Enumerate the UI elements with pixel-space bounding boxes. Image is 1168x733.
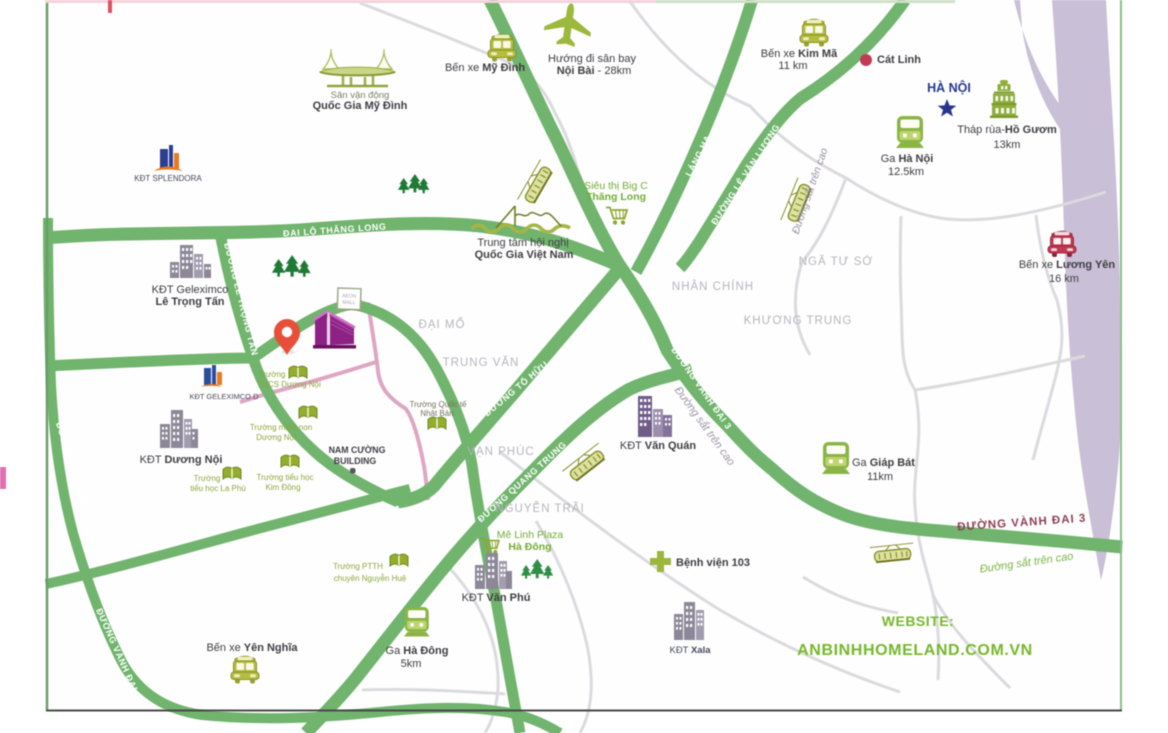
svg-text:Hướng đi sân bay: Hướng đi sân bay [548,53,636,65]
svg-text:Nhật Bản: Nhật Bản [420,409,453,418]
svg-text:Hà Đông: Hà Đông [508,541,551,553]
svg-text:WEBSITE:: WEBSITE: [882,613,954,629]
svg-text:Thăng Long: Thăng Long [586,191,646,203]
svg-text:VẠN PHÚC: VẠN PHÚC [467,445,534,458]
svg-text:KHƯƠNG TRUNG: KHƯƠNG TRUNG [744,315,853,327]
svg-text:KĐT Văn Phú: KĐT Văn Phú [462,592,531,604]
svg-text:Trường Quốc tế: Trường Quốc tế [410,400,468,409]
svg-text:NAM CƯỜNG: NAM CƯỜNG [329,444,386,455]
svg-text:Bệnh viện 103: Bệnh viện 103 [676,557,750,569]
svg-text:NGUYỄN TRÃI: NGUYỄN TRÃI [495,502,584,515]
svg-text:Trường mầm non: Trường mầm non [250,423,312,432]
svg-text:Bến xe Yên Nghĩa: Bến xe Yên Nghĩa [206,642,298,654]
svg-text:KĐT Dương Nội: KĐT Dương Nội [140,454,223,466]
svg-text:tiểu học La Phù: tiểu học La Phù [190,484,246,493]
svg-text:TRUNG VĂN: TRUNG VĂN [443,356,520,369]
svg-text:AEON: AEON [342,293,357,300]
svg-text:12.5km: 12.5km [888,166,924,178]
svg-text:Nội Bài - 28km: Nội Bài - 28km [557,65,632,77]
svg-text:HÀ NỘI: HÀ NỘI [927,80,971,95]
svg-text:13km: 13km [994,139,1021,151]
svg-text:Trung tâm hội nghị: Trung tâm hội nghị [477,237,568,249]
svg-text:Dương Nội: Dương Nội [256,433,296,442]
svg-text:Cát Linh: Cát Linh [877,54,921,66]
svg-text:Kim Đồng: Kim Đồng [265,483,300,492]
svg-text:5km: 5km [401,658,422,670]
svg-text:KĐT Xala: KĐT Xala [669,645,711,656]
svg-text:Ga Hà Đông: Ga Hà Đông [386,645,449,657]
svg-text:BUILDING: BUILDING [334,456,377,466]
svg-text:11 km: 11 km [778,60,807,72]
svg-text:NHÂN CHÍNH: NHÂN CHÍNH [672,280,754,293]
svg-text:Bến xe Lương Yên: Bến xe Lương Yên [1019,259,1116,271]
svg-text:ĐẠI MỔ: ĐẠI MỔ [419,318,466,331]
svg-text:ANBINHHOMELAND.COM.VN: ANBINHHOMELAND.COM.VN [797,642,1033,659]
svg-text:Quốc Gia Mỹ Đình: Quốc Gia Mỹ Đình [313,100,408,112]
svg-text:Lê Trọng Tấn: Lê Trọng Tấn [155,296,224,308]
svg-text:KĐT Văn Quán: KĐT Văn Quán [620,440,696,452]
svg-text:Bến xe Mỹ Đình: Bến xe Mỹ Đình [445,62,525,74]
svg-text:Tháp rùa-Hồ Gươm: Tháp rùa-Hồ Gươm [957,124,1057,136]
svg-text:16 km: 16 km [1049,273,1079,285]
svg-text:THCS Dương Nội: THCS Dương Nội [257,380,321,389]
svg-text:NGÃ TƯ SỞ: NGÃ TƯ SỞ [799,255,873,268]
svg-text:Ga Hà Nội: Ga Hà Nội [881,153,934,165]
svg-text:MALL: MALL [342,300,355,306]
svg-text:KĐT SPLENDORA: KĐT SPLENDORA [134,174,202,183]
svg-text:Trường PTTH: Trường PTTH [333,562,383,571]
svg-text:Mê Linh Plaza: Mê Linh Plaza [497,529,564,541]
svg-text:Trường: Trường [194,474,221,483]
svg-text:11km: 11km [867,471,893,483]
svg-text:chuyên Nguyễn Huệ: chuyên Nguyễn Huệ [334,574,407,583]
svg-text:Trường tiểu học: Trường tiểu học [257,473,314,482]
svg-text:KĐT GELEXIMCO D: KĐT GELEXIMCO D [189,392,259,401]
svg-text:Ga Giáp Bát: Ga Giáp Bát [852,457,915,469]
svg-text:Quốc Gia Việt Nam: Quốc Gia Việt Nam [475,249,574,261]
svg-text:Trường: Trường [259,370,286,379]
svg-text:KĐT Geleximco: KĐT Geleximco [152,284,229,296]
svg-text:Bến xe Kim Mã: Bến xe Kim Mã [761,48,838,60]
